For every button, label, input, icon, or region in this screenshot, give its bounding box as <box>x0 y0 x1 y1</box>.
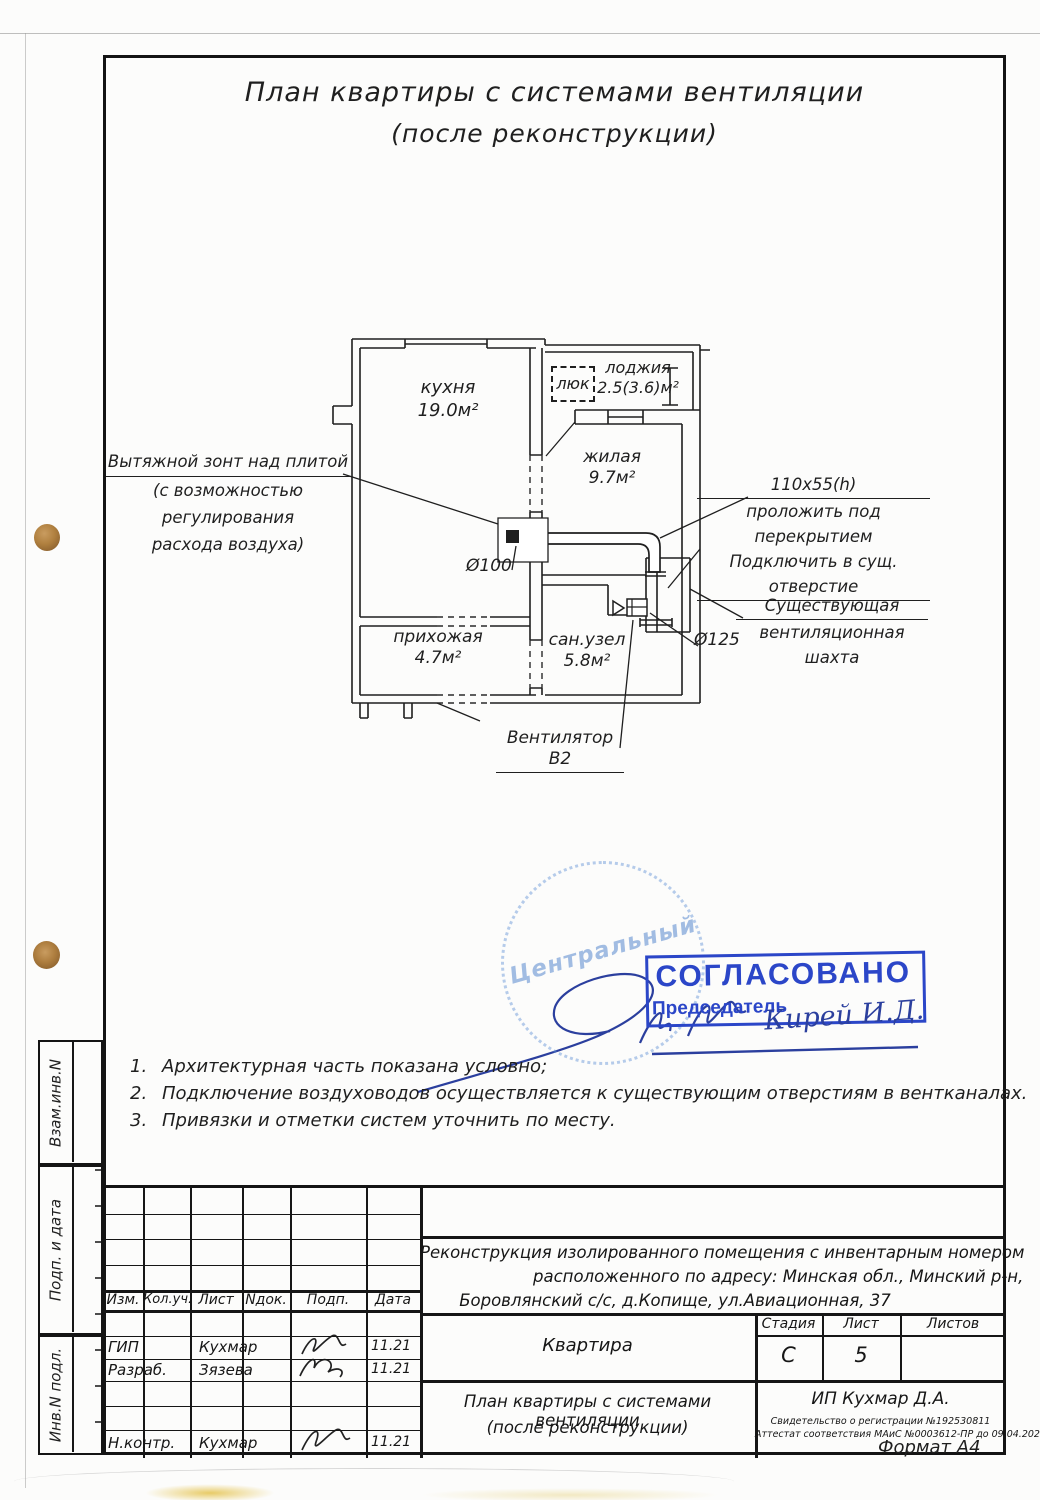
fan-label: Вентилятор В2 <box>496 728 624 773</box>
fan-symbol <box>613 601 624 615</box>
hood-callout-line2: (с возможностью регулирования <box>106 477 350 531</box>
room-kitchen: кухня 19.0м² <box>398 377 498 422</box>
room-loggia-area: 2.5(3.6)м² <box>588 378 688 398</box>
shaft-callout: Существующая вентиляционная шахта <box>736 593 928 670</box>
room-bathroom: сан.узел 5.8м² <box>537 630 637 673</box>
company-name: ИП Кухмар Д.А. <box>755 1389 1006 1409</box>
sheet-value: 5 <box>822 1343 900 1367</box>
shaft-line1: Существующая <box>736 593 928 620</box>
room-bathroom-area: 5.8м² <box>537 651 637 672</box>
row-gip-date: 11.21 <box>371 1338 411 1354</box>
project-line3: Боровлянский с/с, д.Копище, ул.Авиационн… <box>420 1291 930 1310</box>
room-living-name: жилая <box>562 447 662 468</box>
col-header-kol: Кол.уч. <box>143 1292 190 1307</box>
note-2-text: Подключение воздуховодов осуществляется … <box>162 1083 1027 1106</box>
stage-header: Стадия <box>755 1316 822 1332</box>
duct-size-label: 110x55(h) <box>697 472 930 499</box>
company-cert1: Свидетельство о регистрации №192530811 <box>755 1416 1006 1427</box>
room-kitchen-area: 19.0м² <box>398 400 498 423</box>
duct-callout: 110x55(h) проложить под перекрытием Подк… <box>697 472 930 601</box>
row-razrab-name: Зязева <box>199 1361 253 1379</box>
note-3: 3. Привязки и отметки систем уточнить по… <box>130 1110 616 1133</box>
row-nkontr-role: Н.контр. <box>108 1434 175 1452</box>
object-label: Квартира <box>420 1335 755 1356</box>
col-header-izm: Изм. <box>103 1292 143 1308</box>
project-line1: Реконструкция изолированного помещения с… <box>420 1243 1006 1262</box>
note-3-num: 3. <box>130 1110 162 1133</box>
room-kitchen-name: кухня <box>398 377 498 400</box>
col-header-data: Дата <box>366 1292 420 1308</box>
room-living: жилая 9.7м² <box>562 447 662 490</box>
d125-label: Ø125 <box>694 630 740 651</box>
shaft-line2: вентиляционная шахта <box>736 620 928 670</box>
stage-value: С <box>755 1343 822 1367</box>
room-bathroom-name: сан.узел <box>537 630 637 651</box>
duct-note1: проложить под перекрытием <box>697 499 930 549</box>
note-1-text: Архитектурная часть показана условно; <box>162 1056 547 1079</box>
room-hall-name: прихожая <box>388 627 488 648</box>
col-header-podp: Подп. <box>290 1292 366 1308</box>
hood-callout-line3: расхода воздуха) <box>106 531 350 558</box>
sheets-header: Листов <box>900 1316 1006 1332</box>
note-2-num: 2. <box>130 1083 162 1106</box>
project-line2: расположенного по адресу: Минская обл., … <box>533 1267 1006 1286</box>
room-hall-area: 4.7м² <box>388 648 488 669</box>
room-loggia-name: лоджия <box>588 358 688 378</box>
col-header-list: Лист <box>190 1292 242 1308</box>
room-hall: прихожая 4.7м² <box>388 627 488 670</box>
title-block: Изм. Кол.уч. Лист Nдок. Подп. Дата ГИП К… <box>103 1185 1006 1455</box>
scanned-drawing-page: Взам.инв.N Подп. и дата Инв.N подл. План… <box>0 0 1040 1500</box>
note-1: 1. Архитектурная часть показана условно; <box>130 1056 547 1079</box>
note-1-num: 1. <box>130 1056 162 1079</box>
format-label: Формат А4 <box>878 1437 981 1460</box>
note-3-text: Привязки и отметки систем уточнить по ме… <box>162 1110 616 1133</box>
hood-connection-point <box>506 530 519 543</box>
row-nkontr-date: 11.21 <box>371 1434 411 1450</box>
row-gip-name: Кухмар <box>199 1338 257 1356</box>
d100-label: Ø100 <box>466 556 512 577</box>
doc-title-line2: (после реконструкции) <box>420 1418 755 1437</box>
sheet-header: Лист <box>822 1316 900 1332</box>
note-2: 2. Подключение воздуховодов осуществляет… <box>130 1083 1027 1106</box>
hood-callout: Вытяжной зонт над плитой (с возможностью… <box>106 448 350 558</box>
hatch-label: люк <box>556 374 589 394</box>
hatch-box: люк <box>551 366 595 402</box>
hood-callout-line1: Вытяжной зонт над плитой <box>106 448 350 477</box>
row-gip-role: ГИП <box>108 1338 139 1356</box>
approval-stamp-approved: СОГЛАСОВАНО <box>655 956 911 994</box>
col-header-ndok: Nдок. <box>242 1292 290 1308</box>
row-nkontr-name: Кухмар <box>199 1434 257 1452</box>
row-razrab-role: Разраб. <box>108 1361 167 1379</box>
room-living-area: 9.7м² <box>562 468 662 489</box>
row-razrab-date: 11.21 <box>371 1361 411 1377</box>
room-loggia: лоджия 2.5(3.6)м² <box>588 358 688 398</box>
